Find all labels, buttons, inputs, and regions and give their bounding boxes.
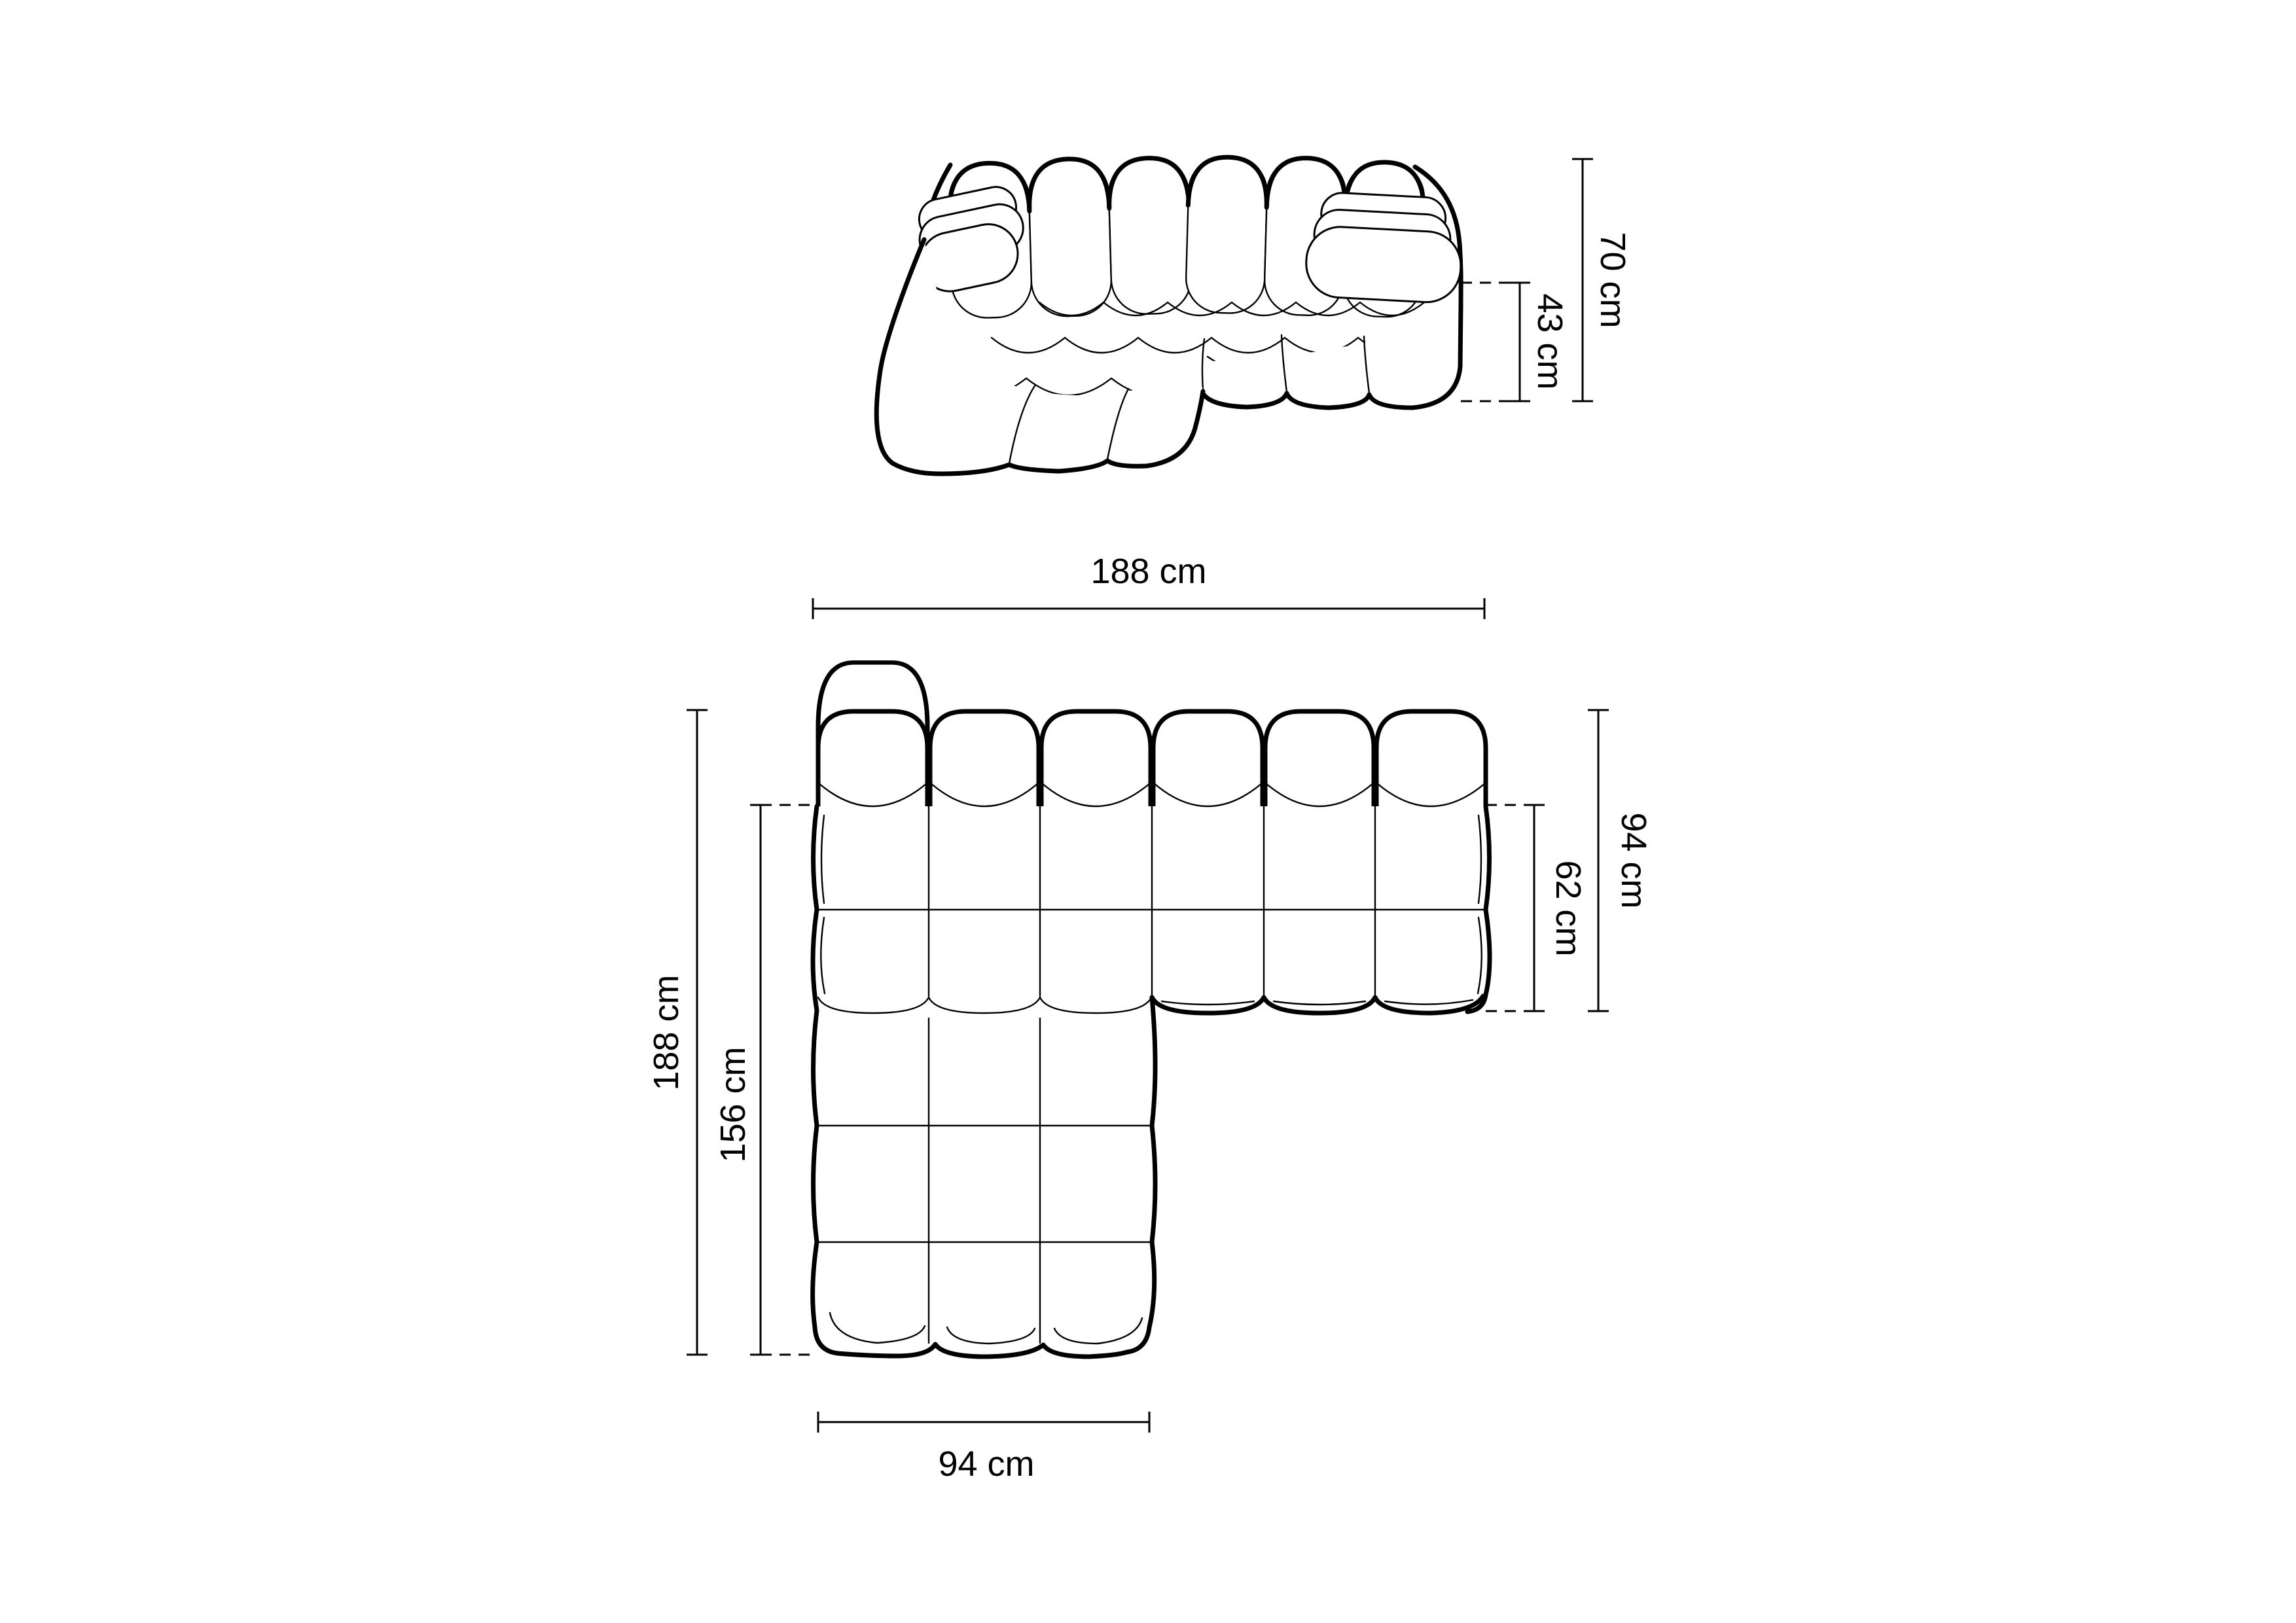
top-view-drawing: 70 cm 43 cm — [876, 155, 1632, 474]
armrest-right — [1304, 191, 1464, 304]
back-cushion — [1185, 156, 1268, 314]
dimension-line-chaise-width — [818, 1412, 1149, 1433]
plan-back-cushion — [1153, 711, 1263, 806]
plan-back-cushion — [1376, 711, 1486, 806]
dimension-line-depth-total — [1588, 710, 1609, 1011]
chaise-top-scallop — [818, 997, 1151, 1013]
dimension-line-chaise-length — [750, 805, 771, 1355]
label-width-total: 188 cm — [1090, 552, 1206, 591]
seat-front-echo — [1274, 1001, 1365, 1005]
dimension-line-width-total — [813, 598, 1484, 619]
chaise-bottom-echo — [830, 1313, 925, 1343]
back-cushion — [1108, 157, 1193, 315]
plan-extension-lines — [761, 805, 1534, 1355]
plan-back-cushion — [930, 711, 1039, 806]
edge-echo — [1479, 815, 1481, 903]
label-chaise-width: 94 cm — [938, 1444, 1034, 1484]
dimension-line-seat-height — [1509, 283, 1530, 401]
edge-echo — [821, 918, 825, 993]
label-depth-total: 94 cm — [1614, 812, 1653, 908]
label-total-height: 70 cm — [1593, 232, 1632, 328]
plan-view-drawing: 188 cm 94 cm 62 cm 188 cm 156 cm 94 cm — [647, 552, 1653, 1484]
label-seat-depth: 62 cm — [1549, 860, 1588, 956]
seat-front-echo — [1385, 1000, 1473, 1005]
dimension-line-seat-depth — [1524, 805, 1545, 1011]
sofa-dimension-diagram: 70 cm 43 cm — [0, 0, 2296, 1623]
label-chaise-length: 156 cm — [713, 1046, 753, 1162]
seat-front-echo — [1162, 1001, 1254, 1005]
edge-echo — [821, 815, 824, 903]
chaise-bottom-echo — [1054, 1318, 1142, 1344]
plan-back-cushion-row — [818, 711, 1486, 806]
chaise-bottom-outline — [838, 1344, 1127, 1357]
plan-dimensions: 188 cm 94 cm 62 cm 188 cm 156 cm 94 cm — [647, 552, 1653, 1484]
dimension-line-length-total — [687, 710, 708, 1355]
plan-back-cushion — [818, 711, 927, 806]
label-length-total: 188 cm — [647, 974, 686, 1090]
chaise-bottom-echo — [947, 1327, 1035, 1344]
diagram-canvas: 70 cm 43 cm — [0, 0, 2296, 1623]
plan-chaise — [818, 997, 1155, 1357]
edge-echo — [1478, 918, 1482, 993]
seat-divider — [1202, 339, 1204, 390]
seat-block-right — [1202, 306, 1461, 408]
plan-back-cushion — [1265, 711, 1374, 806]
top-view-dimensions: 70 cm 43 cm — [1461, 159, 1632, 401]
plan-seat-front-right — [1152, 996, 1483, 1013]
chaise-right-edge — [1127, 997, 1155, 1352]
armrest-front — [1304, 225, 1462, 304]
seat-block-fill — [1203, 308, 1461, 408]
label-seat-height: 43 cm — [1530, 293, 1570, 389]
dimension-line-total-height — [1572, 159, 1593, 401]
plan-seams — [818, 793, 1484, 1343]
plan-back-cushion — [1041, 711, 1151, 806]
back-cushion — [1028, 158, 1113, 317]
plan-left-edge — [813, 806, 838, 1353]
